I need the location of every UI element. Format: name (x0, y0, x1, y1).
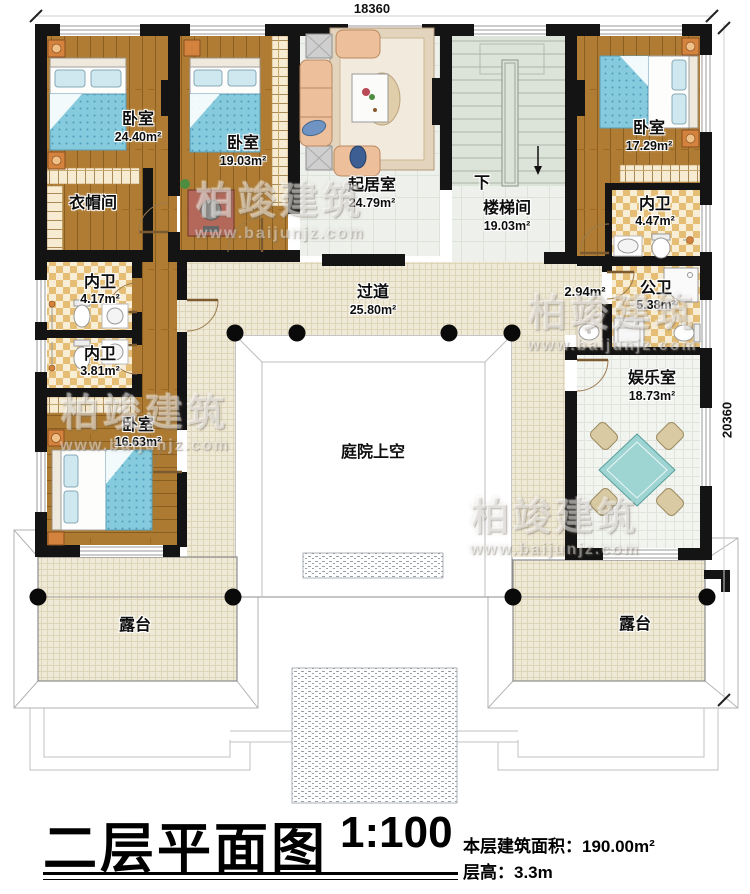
title-underline (43, 872, 458, 875)
label-courtyard: 庭院上空 (341, 445, 405, 462)
area-bedroom-tm: 19.03m² (220, 155, 267, 168)
label-corridor: 过道 (357, 285, 389, 302)
area-bedroom-bl: 16.63m² (115, 436, 162, 449)
label-terrace-right: 露台 (619, 617, 651, 634)
dimension-top: 18360 (354, 1, 390, 16)
area-living-room: 24.79m² (349, 197, 396, 210)
terrace-right-floor (513, 560, 705, 681)
label-entertainment: 娱乐室 (628, 371, 676, 388)
label-public-bath: 公卫 (640, 281, 672, 298)
area-entertainment: 18.73m² (629, 390, 676, 403)
floor-plan-page: 卧室 24.40m² 衣帽间 卧室 19.03m² 起居室 24.79m² 下 … (0, 0, 750, 894)
niche-sink (577, 318, 602, 347)
area-niche: 2.94m² (564, 285, 605, 299)
area-bedroom-tr: 17.29m² (626, 140, 673, 153)
area-corridor: 25.80m² (350, 304, 397, 317)
floor-area-stat: 本层建筑面积：190.00m² (463, 832, 655, 857)
area-bath-l2: 3.81m² (80, 365, 120, 378)
label-stairwell: 楼梯间 (483, 201, 531, 218)
area-stairwell: 19.03m² (484, 220, 531, 233)
label-bedroom-tl: 卧室 (122, 112, 154, 129)
area-bedroom-tl: 24.40m² (115, 131, 162, 144)
label-stairs-down: 下 (474, 176, 490, 193)
courtyard-skylight (235, 335, 512, 597)
label-bath-l2: 内卫 (84, 347, 116, 364)
area-public-bath: 5.38m² (636, 299, 676, 312)
drawing-scale: 1:100 (340, 808, 453, 858)
entertainment-table-chairs (588, 420, 685, 517)
label-bath-l1: 内卫 (84, 275, 116, 292)
label-cloakroom: 衣帽间 (69, 196, 117, 213)
label-bedroom-tm: 卧室 (227, 136, 259, 153)
dimension-right: 20360 (720, 402, 735, 438)
area-bath-tr: 4.47m² (635, 215, 675, 228)
label-terrace-left: 露台 (119, 618, 151, 635)
area-bath-l1: 4.17m² (80, 293, 120, 306)
label-bedroom-bl: 卧室 (122, 418, 154, 435)
title-block: 二层平面图 1:100 本层建筑面积：190.00m² 层高：3.3m (0, 800, 750, 894)
label-living-room: 起居室 (348, 178, 396, 195)
sofa-set-living (300, 28, 434, 176)
floor-height-stat: 层高：3.3m (463, 858, 553, 883)
label-bath-tr: 内卫 (639, 197, 671, 214)
bed-bedroom-tl (48, 40, 126, 169)
label-bedroom-tr: 卧室 (633, 121, 665, 138)
title-underline (43, 879, 458, 880)
lower-roof-hatch (292, 668, 457, 803)
